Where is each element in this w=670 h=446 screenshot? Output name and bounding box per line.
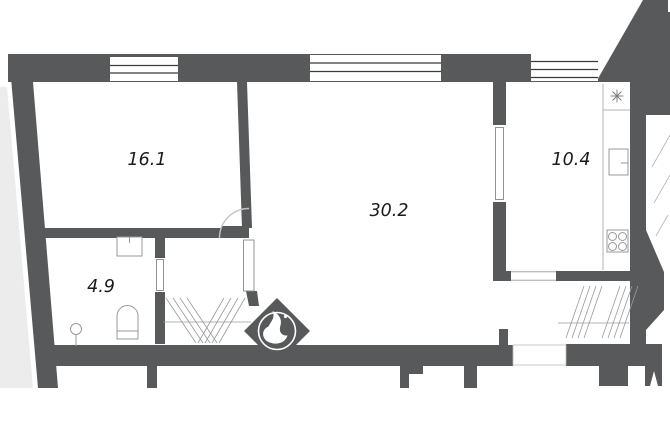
wall-bottom-right [566, 344, 662, 366]
window-left [110, 57, 178, 81]
window-middle [310, 55, 441, 81]
door-leaf-bathroom [157, 260, 164, 291]
door-opening-kitchen-hall [511, 271, 556, 281]
kitchen-sink-icon [609, 149, 628, 175]
wall-stub-2 [400, 366, 409, 388]
room-area-label-kitchen: 10.4 [552, 150, 591, 170]
wall-step [409, 366, 423, 374]
wall-stub-1 [147, 366, 157, 388]
entry-door-jamb [499, 329, 508, 346]
floor-plan: 16.1 30.2 10.4 4.9 [0, 0, 670, 446]
wall-stub-4 [599, 366, 628, 386]
door-leaf-kitchen-wall [496, 128, 504, 200]
stove-icon [607, 230, 628, 252]
room-area-label-left: 16.1 [128, 150, 167, 170]
wall-top [8, 54, 598, 82]
room-area-label-main: 30.2 [370, 201, 409, 221]
wall-bathroom-top [40, 228, 249, 238]
toilet-icon [117, 306, 138, 340]
door-leaf-room-main [244, 240, 255, 291]
room-area-label-bathroom: 4.9 [87, 277, 115, 297]
entry-door-opening [513, 345, 566, 365]
logo-dot [284, 315, 287, 318]
wall-stub-3 [464, 366, 477, 388]
